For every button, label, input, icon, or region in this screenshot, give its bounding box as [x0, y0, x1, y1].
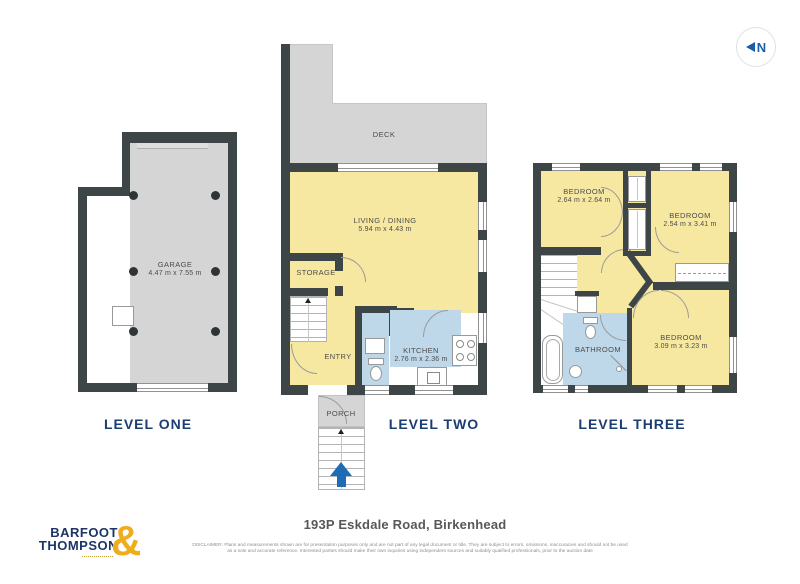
- wall: [541, 247, 601, 255]
- window: [478, 202, 487, 230]
- toilet-tank-fixture: [583, 317, 598, 324]
- column-dot: [129, 191, 138, 200]
- linen-closet-fixture: [577, 296, 597, 313]
- deck-edge: [332, 103, 487, 104]
- floor-plan-sheet: N GARAGE 4.47 m x 7.55 m LEVEL ONE: [0, 0, 800, 584]
- deck-edge: [486, 103, 487, 163]
- window: [478, 240, 487, 272]
- room-label-deck: DECK: [349, 130, 419, 139]
- room-name: DECK: [349, 130, 419, 139]
- wall: [290, 253, 343, 261]
- wall: [122, 132, 237, 143]
- window: [648, 385, 677, 393]
- window: [478, 313, 487, 343]
- shower-head-icon: [616, 366, 622, 372]
- room-name: STORAGE: [281, 268, 351, 277]
- room-name: BEDROOM: [640, 211, 740, 220]
- window: [729, 337, 737, 373]
- wall: [623, 203, 651, 208]
- deck-edge: [332, 44, 333, 104]
- entrance-arrow-icon: [337, 475, 346, 487]
- slider-door-window: [338, 163, 438, 172]
- window: [660, 163, 692, 171]
- window: [365, 385, 389, 395]
- north-arrow-icon: [746, 42, 755, 52]
- sink-bowl-icon: [427, 372, 440, 384]
- closet-shelf-line: [637, 211, 638, 248]
- garage-door-opening: [137, 383, 208, 392]
- room-dims: 5.94 m x 4.43 m: [325, 225, 445, 234]
- room-label-bedroom-3: BEDROOM 3.09 m x 3.23 m: [631, 333, 731, 351]
- wall: [122, 132, 130, 196]
- wardrobe-rail-line: [678, 273, 726, 274]
- room-name: PORCH: [306, 409, 376, 418]
- room-dims: 3.09 m x 3.23 m: [631, 342, 731, 351]
- bathtub-fixture: [542, 335, 563, 384]
- property-address: 193P Eskdale Road, Birkenhead: [205, 517, 605, 532]
- barfoot-thompson-logo: BARFOOT THOMPSON &: [35, 517, 145, 563]
- disclaimer-line-2: as a sole and accurate reference. Intere…: [95, 549, 725, 555]
- entrance-arrow-icon: [330, 462, 352, 476]
- logo-ampersand: &: [111, 520, 141, 562]
- wall: [335, 286, 343, 296]
- disclaimer-text: DISCLAIMER: Plans and measurements shown…: [95, 543, 725, 555]
- level-three-label: LEVEL THREE: [572, 416, 692, 432]
- stairs: [541, 255, 577, 296]
- room-dims: 4.47 m x 7.55 m: [115, 269, 235, 278]
- window: [575, 385, 588, 393]
- room-name: GARAGE: [115, 260, 235, 269]
- level-three-plan: BATHROOM BEDROOM 2.64 m x 2.64 m BEDROOM…: [533, 163, 737, 393]
- room-label-bedroom-1: BEDROOM 2.64 m x 2.64 m: [534, 187, 634, 205]
- column-dot: [211, 327, 220, 336]
- room-name: LIVING / DINING: [325, 216, 445, 225]
- wall: [281, 44, 290, 395]
- room-dims: 2.76 m x 2.36 m: [361, 355, 481, 364]
- window: [552, 163, 580, 171]
- logo-tagline: [82, 556, 113, 557]
- level-one-label: LEVEL ONE: [88, 416, 208, 432]
- room-label-kitchen: KITCHEN 2.76 m x 2.36 m: [361, 346, 481, 364]
- deck-edge: [290, 44, 333, 45]
- window: [415, 385, 453, 395]
- stair-direction-arrow: [338, 429, 344, 434]
- room-label-garage: GARAGE 4.47 m x 7.55 m: [115, 260, 235, 278]
- toilet-bowl-fixture: [585, 325, 596, 339]
- garage-door-top: [137, 143, 208, 149]
- room-label-storage: STORAGE: [281, 268, 351, 277]
- closet-fixture: [628, 176, 646, 202]
- column-dot: [211, 191, 220, 200]
- room-dims: 2.64 m x 2.64 m: [534, 196, 634, 205]
- window: [729, 202, 737, 232]
- stair-direction-arrow: [305, 298, 311, 303]
- room-label-living-dining: LIVING / DINING 5.94 m x 4.43 m: [325, 216, 445, 234]
- basin-fixture: [569, 365, 582, 378]
- window: [685, 385, 712, 393]
- wall: [78, 187, 87, 392]
- wall: [653, 282, 737, 290]
- level-one-plan: GARAGE 4.47 m x 7.55 m: [78, 132, 237, 392]
- front-door-opening: [308, 385, 347, 395]
- wardrobe-fixture: [675, 263, 729, 282]
- room-name: KITCHEN: [361, 346, 481, 355]
- room-name: BEDROOM: [631, 333, 731, 342]
- wall: [290, 288, 328, 296]
- cupboard-fixture: [112, 306, 134, 326]
- compass-n-label: N: [757, 40, 766, 55]
- room-label-porch: PORCH: [306, 409, 376, 418]
- room-name: BEDROOM: [534, 187, 634, 196]
- kitchen-sink-fixture: [417, 367, 447, 386]
- column-dot: [129, 327, 138, 336]
- level-two-label: LEVEL TWO: [374, 416, 494, 432]
- toilet-bowl-fixture: [370, 366, 382, 381]
- window: [700, 163, 722, 171]
- window: [543, 385, 568, 393]
- closet-shelf-line: [637, 178, 638, 200]
- north-compass-icon: N: [736, 27, 776, 67]
- wall: [533, 163, 541, 393]
